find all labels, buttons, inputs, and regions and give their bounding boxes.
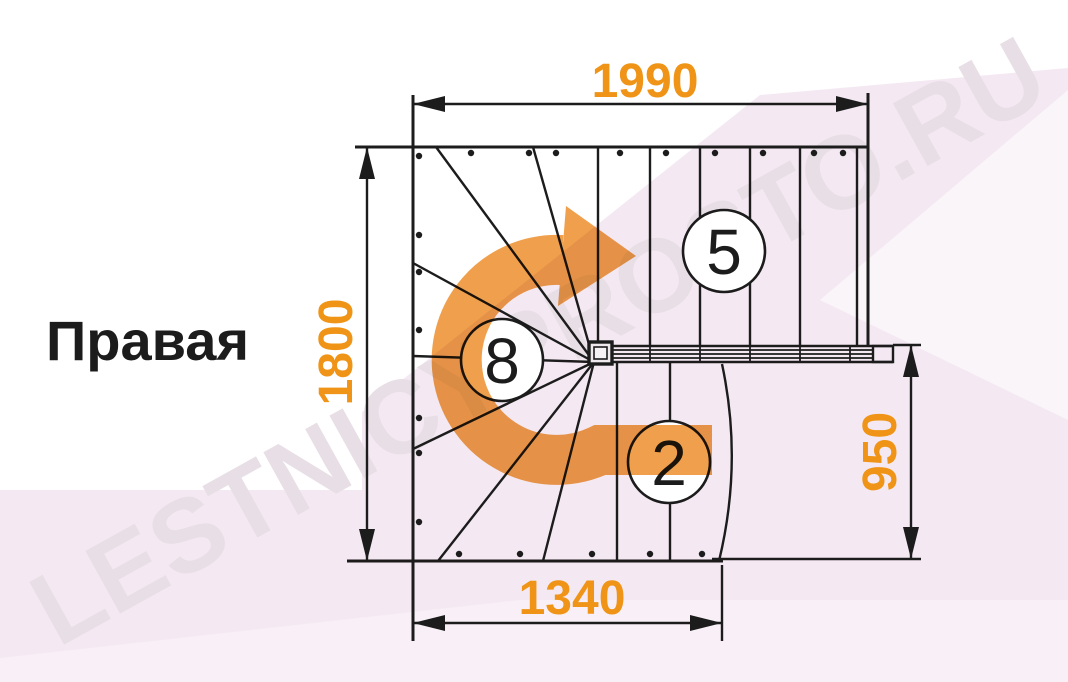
page-title: Правая <box>46 309 249 372</box>
newel-post-core <box>594 347 607 359</box>
dimension-value-left: 1800 <box>310 299 363 406</box>
dimension-value-bottom: 1340 <box>519 572 626 625</box>
dimension-value-top: 1990 <box>592 55 699 108</box>
staircase-plan-page: LESTNICYPROSTO.RU Правая <box>0 0 1068 682</box>
staircase-plan-drawing: LESTNICYPROSTO.RU Правая <box>0 0 1068 682</box>
step-count-top-flight: 5 <box>706 216 742 288</box>
step-count-winder: 8 <box>484 325 520 397</box>
dimension-value-right: 950 <box>854 412 907 492</box>
